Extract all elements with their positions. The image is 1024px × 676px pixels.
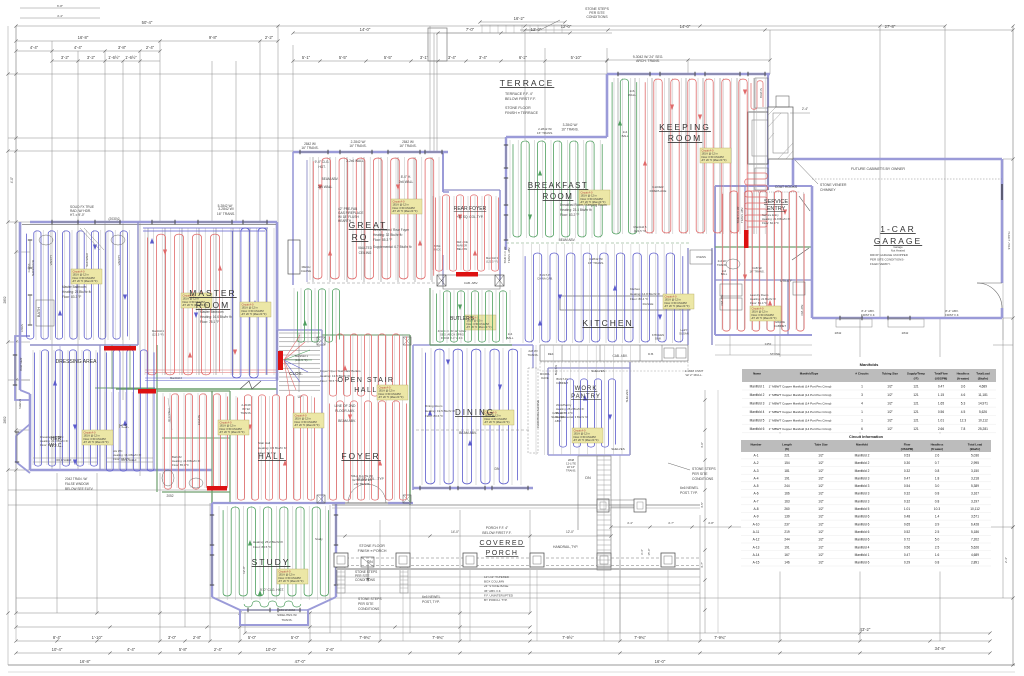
svg-text:3'-8": 3'-8" [118, 45, 127, 50]
svg-text:ABV.: ABV. [555, 419, 562, 423]
svg-text:16" TRANS.: 16" TRANS. [588, 261, 604, 265]
svg-text:A-4: A-4 [754, 476, 759, 480]
svg-text:1/2": 1/2" [818, 553, 824, 557]
svg-text:1: 1 [861, 384, 863, 388]
svg-text:1.15: 1.15 [938, 393, 944, 397]
svg-text:ROOM: ROOM [543, 192, 574, 201]
svg-text:PER SITE: PER SITE [358, 602, 374, 606]
svg-text:9'0¾" x 8'0"H.: 9'0¾" x 8'0"H. [1007, 231, 1011, 250]
svg-text:0.8: 0.8 [935, 469, 940, 473]
svg-text:ΔT: 20 °F (Max:20 °F): ΔT: 20 °F (Max:20 °F) [242, 312, 267, 316]
svg-text:121: 121 [913, 419, 919, 423]
svg-text:7'-9¾": 7'-9¾" [432, 635, 444, 640]
svg-text:3'-0": 3'-0" [168, 635, 177, 640]
svg-text:(2030)2: (2030)2 [109, 217, 120, 221]
svg-text:Manifold 6: Manifold 6 [855, 530, 870, 534]
svg-text:CEILING: CEILING [359, 251, 372, 255]
svg-text:6x6 NEWEL: 6x6 NEWEL [422, 595, 441, 599]
svg-text:0.8: 0.8 [935, 499, 940, 503]
svg-text:A-14: A-14 [753, 553, 760, 557]
svg-text:1" MBWT Copper Manifold (14 Po: 1" MBWT Copper Manifold (14 Port Pex Cri… [769, 427, 832, 431]
svg-text:Manifold 5: Manifold 5 [750, 419, 765, 423]
svg-text:ΔT: 20 °F (Max:20 °F): ΔT: 20 °F (Max:20 °F) [485, 420, 510, 424]
svg-text:1.65: 1.65 [938, 401, 944, 405]
svg-text:FIRST F.F.: FIRST F.F. [945, 313, 959, 317]
svg-text:1/2": 1/2" [818, 545, 824, 549]
svg-text:121: 121 [913, 427, 919, 431]
svg-text:4'-0": 4'-0" [700, 442, 704, 448]
svg-text:Manifold 6: Manifold 6 [855, 538, 870, 542]
svg-text:16'-2": 16'-2" [514, 16, 525, 21]
svg-text:0.47: 0.47 [938, 384, 944, 388]
svg-text:PER SITE CONDITIONS-: PER SITE CONDITIONS- [870, 258, 904, 262]
svg-text:POST. TYP.: POST. TYP. [680, 491, 698, 495]
svg-text:9'-0" CLG.: 9'-0" CLG. [315, 160, 330, 164]
svg-text:(USGPM): (USGPM) [901, 447, 914, 451]
svg-text:34'-8": 34'-8" [935, 646, 946, 651]
svg-text:4'-0": 4'-0" [10, 177, 14, 183]
svg-text:A-7: A-7 [754, 499, 759, 503]
svg-text:11,181: 11,181 [978, 393, 988, 397]
svg-text:5'-5": 5'-5" [339, 55, 348, 60]
svg-text:Headloss: Headloss [957, 372, 970, 376]
svg-text:Tubing Size: Tubing Size [882, 372, 898, 376]
svg-text:SHWR DOOR: SHWR DOOR [31, 260, 35, 277]
svg-text:5'-8": 5'-8" [179, 647, 188, 652]
svg-text:1/2": 1/2" [818, 499, 824, 503]
svg-text:Headloss: Headloss [931, 443, 944, 447]
svg-text:Manifold 2: Manifold 2 [855, 461, 870, 465]
svg-text:Manifold 1: Manifold 1 [855, 553, 870, 557]
svg-text:Breakfast Room / Keeping Room: Breakfast Room / Keeping Room [560, 203, 607, 207]
svg-text:CAB. ABV.: CAB. ABV. [612, 354, 627, 358]
svg-text:A-1: A-1 [754, 454, 759, 458]
svg-text:4'-7": 4'-7" [668, 521, 674, 525]
svg-text:BATH: BATH [36, 307, 41, 317]
svg-text:14'-0": 14'-0" [360, 27, 371, 32]
svg-text:BY PORCH. TYP.: BY PORCH. TYP. [484, 598, 508, 602]
svg-text:STONE STEPS: STONE STEPS [358, 597, 382, 601]
svg-text:STONE FLOOR: STONE FLOOR [505, 106, 531, 110]
svg-text:Heating: 14.8 Btu/hr ft²: Heating: 14.8 Btu/hr ft² [630, 292, 660, 296]
svg-text:Floor: 83.3 °F: Floor: 83.3 °F [62, 295, 81, 299]
svg-text:STUDY: STUDY [252, 557, 291, 567]
svg-text:(Btu/hr): (Btu/hr) [970, 447, 980, 451]
svg-text:3.0: 3.0 [935, 484, 940, 488]
svg-text:FALSE WNDOW: FALSE WNDOW [65, 482, 89, 486]
svg-text:16'-0": 16'-0" [655, 659, 666, 664]
svg-text:TRANS.: TRANS. [281, 618, 292, 622]
svg-text:REAR FOYER: REAR FOYER [454, 206, 487, 212]
svg-text:6'-3": 6'-3" [640, 549, 644, 555]
svg-text:121: 121 [913, 384, 919, 388]
svg-text:(121.5 °F): (121.5 °F) [152, 333, 164, 337]
svg-text:Tube Size: Tube Size [814, 443, 828, 447]
svg-text:0.65: 0.65 [904, 522, 910, 526]
svg-text:Floor: 80.4 °F: Floor: 80.4 °F [630, 297, 648, 301]
svg-text:2.5: 2.5 [935, 545, 940, 549]
svg-text:(121.5 °F): (121.5 °F) [634, 229, 647, 233]
svg-text:27'-8": 27'-8" [885, 24, 896, 29]
svg-text:Heating: 32 Btu/hr ft²: Heating: 32 Btu/hr ft² [373, 233, 402, 237]
svg-text:4'-5": 4'-5" [700, 502, 704, 508]
svg-text:16" TRANS.: 16" TRANS. [301, 146, 318, 150]
svg-text:Manifold 6: Manifold 6 [855, 522, 870, 526]
svg-text:Manifold 2: Manifold 2 [750, 393, 765, 397]
svg-text:166: 166 [784, 492, 790, 496]
svg-text:HT. ≡ 9'-0": HT. ≡ 9'-0" [70, 213, 85, 217]
svg-text:A-9: A-9 [754, 515, 759, 519]
svg-text:7,202: 7,202 [971, 538, 979, 542]
svg-text:+42 TRANS.: +42 TRANS. [354, 482, 371, 486]
svg-text:3,571: 3,571 [971, 515, 979, 519]
svg-text:2'-4": 2'-4" [1004, 557, 1008, 563]
svg-text:16" TRANS.: 16" TRANS. [561, 128, 578, 132]
svg-text:H.S.: H.S. [119, 424, 129, 430]
svg-text:F.F. UNINTERUPTED: F.F. UNINTERUPTED [484, 593, 514, 597]
svg-text:SHELVES: SHELVES [591, 369, 605, 373]
svg-text:ΔT: 20 °F (Max:20 °F): ΔT: 20 °F (Max:20 °F) [702, 158, 727, 162]
svg-text:0.56: 0.56 [904, 545, 910, 549]
svg-text:ΔT: 20 °F (Max:20 °F): ΔT: 20 °F (Max:20 °F) [393, 209, 418, 213]
svg-text:# Circuits: # Circuits [855, 372, 869, 376]
svg-text:244: 244 [784, 484, 790, 488]
svg-text:GARAGE: GARAGE [874, 236, 922, 246]
svg-text:1.6: 1.6 [935, 553, 940, 557]
svg-text:D.B.: D.B. [648, 352, 654, 356]
svg-text:237: 237 [784, 522, 790, 526]
svg-text:BEAM ABV.: BEAM ABV. [459, 431, 477, 435]
svg-text:Manifold 2: Manifold 2 [855, 469, 870, 473]
svg-text:2x6 WALL: 2x6 WALL [318, 185, 333, 189]
svg-text:(ft): (ft) [785, 447, 789, 451]
svg-text:Dining Room: Dining Room [425, 404, 443, 408]
svg-text:LINE OF 2ND: LINE OF 2ND [335, 404, 356, 408]
svg-text:FIREPLACE: FIREPLACE [650, 189, 667, 193]
svg-text:BOW SEAT: BOW SEAT [19, 357, 23, 371]
svg-text:TRANS. ABV.: TRANS. ABV. [740, 207, 744, 223]
svg-text:Floor: 78.0 °F: Floor: 78.0 °F [113, 457, 130, 461]
svg-text:Manifold 3: Manifold 3 [855, 499, 870, 503]
svg-text:1/2": 1/2" [887, 410, 893, 414]
svg-text:1/2": 1/2" [818, 484, 824, 488]
svg-text:3'-2": 3'-2" [87, 55, 96, 60]
svg-text:3,218: 3,218 [971, 476, 979, 480]
svg-text:3: 3 [861, 393, 863, 397]
svg-text:(ft water): (ft water) [957, 377, 969, 381]
svg-text:ΔT: 20 °F (Max:20 °F): ΔT: 20 °F (Max:20 °F) [279, 579, 304, 583]
svg-text:Stair Hall: Stair Hall [258, 441, 271, 445]
svg-text:1/2": 1/2" [818, 530, 824, 534]
svg-text:FINISH ≡ TERRACE: FINISH ≡ TERRACE [505, 111, 539, 115]
svg-text:RO: RO [352, 232, 369, 242]
svg-text:1'-6½": 1'-6½" [108, 55, 120, 60]
svg-text:4,689: 4,689 [971, 553, 979, 557]
svg-text:121: 121 [913, 393, 919, 397]
svg-text:Floor: 83.5 °F: Floor: 83.5 °F [253, 545, 271, 549]
svg-text:BUTLER'S: BUTLER'S [450, 316, 475, 322]
svg-text:1" MBWT Copper Manifold (14 Po: 1" MBWT Copper Manifold (14 Port Pex Cri… [769, 401, 832, 405]
svg-text:BREAKFAST: BREAKFAST [528, 181, 589, 190]
svg-text:WORK: WORK [575, 386, 598, 392]
svg-text:TRANS.: TRANS. [566, 469, 576, 473]
svg-text:ENTRY: ENTRY [767, 206, 786, 212]
svg-text:1/2": 1/2" [818, 454, 824, 458]
svg-text:10,112: 10,112 [970, 507, 980, 511]
svg-text:COVERED: COVERED [479, 540, 524, 547]
svg-text:RD & SHELF: RD & SHELF [56, 458, 72, 462]
svg-text:Manifold 4: Manifold 4 [855, 545, 870, 549]
svg-text:HER: HER [51, 436, 62, 442]
svg-text:FIRST F.F.: FIRST F.F. [861, 313, 875, 317]
svg-text:Manifold 6: Manifold 6 [855, 561, 870, 565]
svg-text:Heating: 0.5 Btu/hr ft²: Heating: 0.5 Btu/hr ft² [258, 446, 287, 450]
svg-text:1/2": 1/2" [818, 561, 824, 565]
svg-text:121: 121 [913, 410, 919, 414]
svg-text:CLOS.: CLOS. [289, 371, 303, 376]
svg-text:DRESSING AREA: DRESSING AREA [56, 359, 98, 365]
svg-text:CABINET: CABINET [556, 381, 568, 385]
svg-text:0.53: 0.53 [904, 454, 910, 458]
svg-text:3,167: 3,167 [971, 492, 979, 496]
svg-text:2'-6": 2'-6" [326, 647, 335, 652]
svg-text:RD & SHELF: RD & SHELF [168, 407, 171, 422]
svg-text:Floor: 78.1 °F: Floor: 78.1 °F [200, 320, 219, 324]
svg-text:3'-1": 3'-1" [420, 55, 429, 60]
svg-text:7'-9¾": 7'-9¾" [714, 635, 726, 640]
svg-text:43'-2": 43'-2" [860, 627, 871, 632]
svg-text:0.29: 0.29 [904, 561, 910, 565]
svg-text:BULT-IN: BULT-IN [759, 88, 763, 98]
svg-text:Heating: 16.6 Btu/hr ft²: Heating: 16.6 Btu/hr ft² [200, 315, 232, 319]
svg-text:1/2": 1/2" [818, 522, 824, 526]
svg-text:4,689: 4,689 [979, 384, 987, 388]
svg-text:2,891: 2,891 [971, 561, 979, 565]
svg-text:12.3: 12.3 [960, 419, 966, 423]
svg-text:KITCHEN: KITCHEN [582, 318, 633, 328]
svg-text:16'-8": 16'-8" [78, 35, 89, 40]
svg-text:4.6: 4.6 [961, 393, 966, 397]
svg-text:16" TRANS.: 16" TRANS. [537, 131, 553, 135]
svg-text:1/2": 1/2" [818, 515, 824, 519]
svg-text:DN: DN [495, 467, 500, 471]
svg-text:DINING: DINING [455, 408, 495, 417]
svg-text:Manifold 1: Manifold 1 [750, 384, 765, 388]
svg-text:CAB. ABV.: CAB. ABV. [801, 304, 804, 316]
svg-text:2.5: 2.5 [935, 530, 940, 534]
svg-text:Manifold 3: Manifold 3 [855, 484, 870, 488]
svg-text:Heating: 23.4 Btu/hr ft²: Heating: 23.4 Btu/hr ft² [560, 208, 592, 212]
svg-text:163: 163 [784, 499, 790, 503]
svg-text:SINK: SINK [655, 337, 662, 341]
svg-text:PORCH: PORCH [486, 550, 519, 557]
svg-text:SHELVES: SHELVES [611, 447, 625, 451]
svg-text:OVENS: OVENS [696, 255, 706, 259]
svg-text:SUSAN: SUSAN [679, 332, 689, 336]
svg-text:260: 260 [784, 507, 790, 511]
svg-text:5'-0": 5'-0" [248, 635, 257, 640]
svg-text:0.8: 0.8 [935, 561, 940, 565]
svg-text:HANDRAIL,TYP.: HANDRAIL,TYP. [553, 545, 578, 549]
svg-text:OPEN STAIR: OPEN STAIR [338, 377, 395, 384]
svg-text:CHIMNEY: CHIMNEY [820, 188, 836, 192]
svg-text:3.9: 3.9 [935, 522, 940, 526]
svg-text:10,112: 10,112 [978, 419, 988, 423]
svg-text:4'-4": 4'-4" [127, 647, 136, 652]
svg-text:25,281: 25,281 [978, 427, 988, 431]
svg-text:1/2": 1/2" [818, 476, 824, 480]
svg-text:5,626: 5,626 [971, 545, 979, 549]
svg-text:1/2": 1/2" [818, 538, 824, 542]
svg-text:5,389: 5,389 [971, 484, 979, 488]
svg-text:A-8: A-8 [754, 507, 759, 511]
svg-text:244: 244 [784, 538, 790, 542]
svg-text:Floor: 85.3 °F: Floor: 85.3 °F [373, 238, 392, 242]
svg-text:Master Bedroom: Master Bedroom [200, 310, 224, 314]
svg-text:6,428: 6,428 [971, 522, 979, 526]
svg-text:5.3: 5.3 [961, 401, 966, 405]
svg-text:36" ABV. F.F.: 36" ABV. F.F. [484, 589, 501, 593]
svg-text:1" MBWT Copper Manifold (14 Po: 1" MBWT Copper Manifold (14 Port Pex Cri… [769, 410, 832, 414]
svg-text:BELOW SEE ELEV.: BELOW SEE ELEV. [65, 487, 94, 491]
svg-text:HALL: HALL [354, 387, 378, 394]
svg-text:TotalFlow: TotalFlow [934, 372, 948, 376]
svg-text:GLASS: GLASS [27, 263, 31, 272]
svg-text:ΔT: 20 °F (Max:20 °F): ΔT: 20 °F (Max:20 °F) [665, 304, 690, 308]
svg-text:BEAM ABV.: BEAM ABV. [559, 238, 576, 242]
svg-text:TRANS. ABV.: TRANS. ABV. [507, 247, 511, 263]
svg-text:LINEN: LINEN [20, 324, 24, 332]
svg-text:5.0: 5.0 [935, 538, 940, 542]
svg-text:A-13: A-13 [753, 545, 760, 549]
svg-text:Flow: Flow [904, 443, 911, 447]
svg-text:BELOW FIRST F.F.: BELOW FIRST F.F. [482, 531, 511, 535]
svg-text:5'-1": 5'-1" [302, 55, 311, 60]
svg-text:Manifold 3: Manifold 3 [750, 401, 765, 405]
svg-text:154: 154 [784, 461, 790, 465]
svg-text:ΔT: 20 °F (Max:20 °F): ΔT: 20 °F (Max:20 °F) [467, 325, 492, 329]
svg-text:A-12: A-12 [753, 538, 760, 542]
svg-text:1: 1 [861, 419, 863, 423]
svg-text:FURNITURE ALCOVE: FURNITURE ALCOVE [536, 400, 540, 428]
svg-text:Kitchen: Kitchen [630, 287, 640, 291]
svg-text:2842: 2842 [835, 331, 842, 335]
svg-text:3'-2": 3'-2" [61, 55, 70, 60]
svg-text:Manifold 4: Manifold 4 [750, 410, 765, 414]
svg-text:3'-4": 3'-4" [479, 55, 488, 60]
svg-text:2852: 2852 [3, 416, 7, 423]
svg-text:1/2": 1/2" [818, 461, 824, 465]
svg-text:(°F): (°F) [914, 377, 919, 381]
svg-text:14,971: 14,971 [978, 401, 988, 405]
svg-text:346 W 2042: 346 W 2042 [279, 608, 296, 612]
svg-text:2.6: 2.6 [935, 454, 940, 458]
svg-text:ManifoldType: ManifoldType [800, 372, 819, 376]
svg-text:CAB. ABV.: CAB. ABV. [464, 281, 478, 285]
svg-text:139: 139 [784, 515, 790, 519]
svg-text:1/2": 1/2" [818, 492, 824, 496]
svg-text:ΔT: 20 °F (Max:20 °F): ΔT: 20 °F (Max:20 °F) [73, 279, 98, 283]
svg-text:Total Load: Total Load [968, 443, 983, 447]
svg-text:1/2": 1/2" [887, 419, 893, 423]
svg-text:SERVICE: SERVICE [764, 199, 788, 205]
svg-text:2'-4": 2'-4" [214, 647, 223, 652]
svg-text:Manifold 2: Manifold 2 [855, 454, 870, 458]
svg-text:Manifold 6: Manifold 6 [855, 515, 870, 519]
svg-text:181: 181 [784, 469, 790, 473]
svg-text:4'-4": 4'-4" [74, 45, 83, 50]
svg-text:Master Bathroom: Master Bathroom [62, 285, 87, 289]
svg-text:16" TRANS.: 16" TRANS. [349, 144, 366, 148]
svg-text:ΔT: 20 °F (Max:20 °F): ΔT: 20 °F (Max:20 °F) [84, 440, 109, 444]
svg-text:16" TRANS.: 16" TRANS. [399, 144, 416, 148]
svg-text:CONDITIONS: CONDITIONS [692, 477, 714, 481]
svg-text:1.8: 1.8 [935, 476, 940, 480]
svg-text:2-2x6 WALL: 2-2x6 WALL [346, 159, 364, 163]
svg-text:SHOWER: SHOWER [85, 252, 89, 266]
svg-text:1/2": 1/2" [887, 427, 893, 431]
svg-text:PANTRY: PANTRY [571, 394, 601, 400]
svg-text:0.72: 0.72 [904, 538, 910, 542]
svg-text:0.8: 0.8 [935, 492, 940, 496]
svg-text:7'-0": 7'-0" [466, 27, 475, 32]
svg-text:50'-4": 50'-4" [142, 20, 153, 25]
svg-text:BELOW: BELOW [457, 247, 467, 251]
svg-text:FROM 8'-4" A.F.F.: FROM 8'-4" A.F.F. [441, 336, 463, 340]
svg-text:TRANS.: TRANS. [240, 411, 251, 415]
svg-text:RANGE: RANGE [643, 302, 654, 306]
svg-text:6'-2": 6'-2" [519, 55, 528, 60]
svg-text:1/2": 1/2" [887, 384, 893, 388]
svg-text:4'-4": 4'-4" [57, 14, 63, 18]
svg-text:FINISH ≡ PORCH: FINISH ≡ PORCH [358, 549, 387, 553]
svg-text:167: 167 [784, 553, 790, 557]
svg-text:Floor: 85.0 °F: Floor: 85.0 °F [172, 463, 189, 467]
svg-text:191: 191 [784, 545, 790, 549]
svg-text:7'-9¾": 7'-9¾" [634, 635, 646, 640]
svg-text:POST, TYP.: POST, TYP. [422, 600, 440, 604]
svg-text:ROOM: ROOM [668, 133, 702, 143]
svg-text:CHASE: CHASE [301, 269, 311, 273]
svg-text:ARCH. TRANS.: ARCH. TRANS. [636, 59, 660, 63]
svg-text:16" TRANS.: 16" TRANS. [749, 270, 764, 274]
svg-text:CONDITIONS: CONDITIONS [355, 578, 375, 582]
svg-text:(ft water): (ft water) [931, 447, 943, 451]
svg-text:SHELVS: SHELVS [18, 399, 22, 409]
svg-text:Manifold: Manifold [856, 443, 868, 447]
svg-text:7'-9½": 7'-9½" [562, 635, 574, 640]
svg-text:Not Heated: Not Heated [891, 249, 906, 253]
svg-text:TotalLoad: TotalLoad [976, 372, 990, 376]
svg-text:(Btu/hr): (Btu/hr) [978, 377, 988, 381]
svg-text:A-15: A-15 [753, 561, 760, 565]
svg-text:Manifolds: Manifolds [860, 362, 879, 367]
svg-text:2.66: 2.66 [938, 427, 944, 431]
svg-text:A-10: A-10 [753, 522, 760, 526]
svg-text:A-6: A-6 [754, 492, 759, 496]
svg-text:4'-4": 4'-4" [30, 45, 39, 50]
svg-text:Study: Study [315, 537, 323, 541]
svg-text:7'-9¾": 7'-9¾" [359, 635, 371, 640]
svg-text:4'-4": 4'-4" [627, 521, 633, 525]
svg-text:DN: DN [585, 476, 591, 480]
svg-text:0.32: 0.32 [904, 499, 910, 503]
svg-text:ΔT: 20 °F (Max:20 °F): ΔT: 20 °F (Max:20 °F) [752, 316, 777, 320]
svg-text:W.I.C.: W.I.C. [49, 443, 63, 449]
svg-text:Floor: 83.2 °F: Floor: 83.2 °F [560, 213, 579, 217]
svg-text:1.4: 1.4 [935, 515, 940, 519]
svg-text:6x6 NEWEL: 6x6 NEWEL [680, 486, 699, 490]
